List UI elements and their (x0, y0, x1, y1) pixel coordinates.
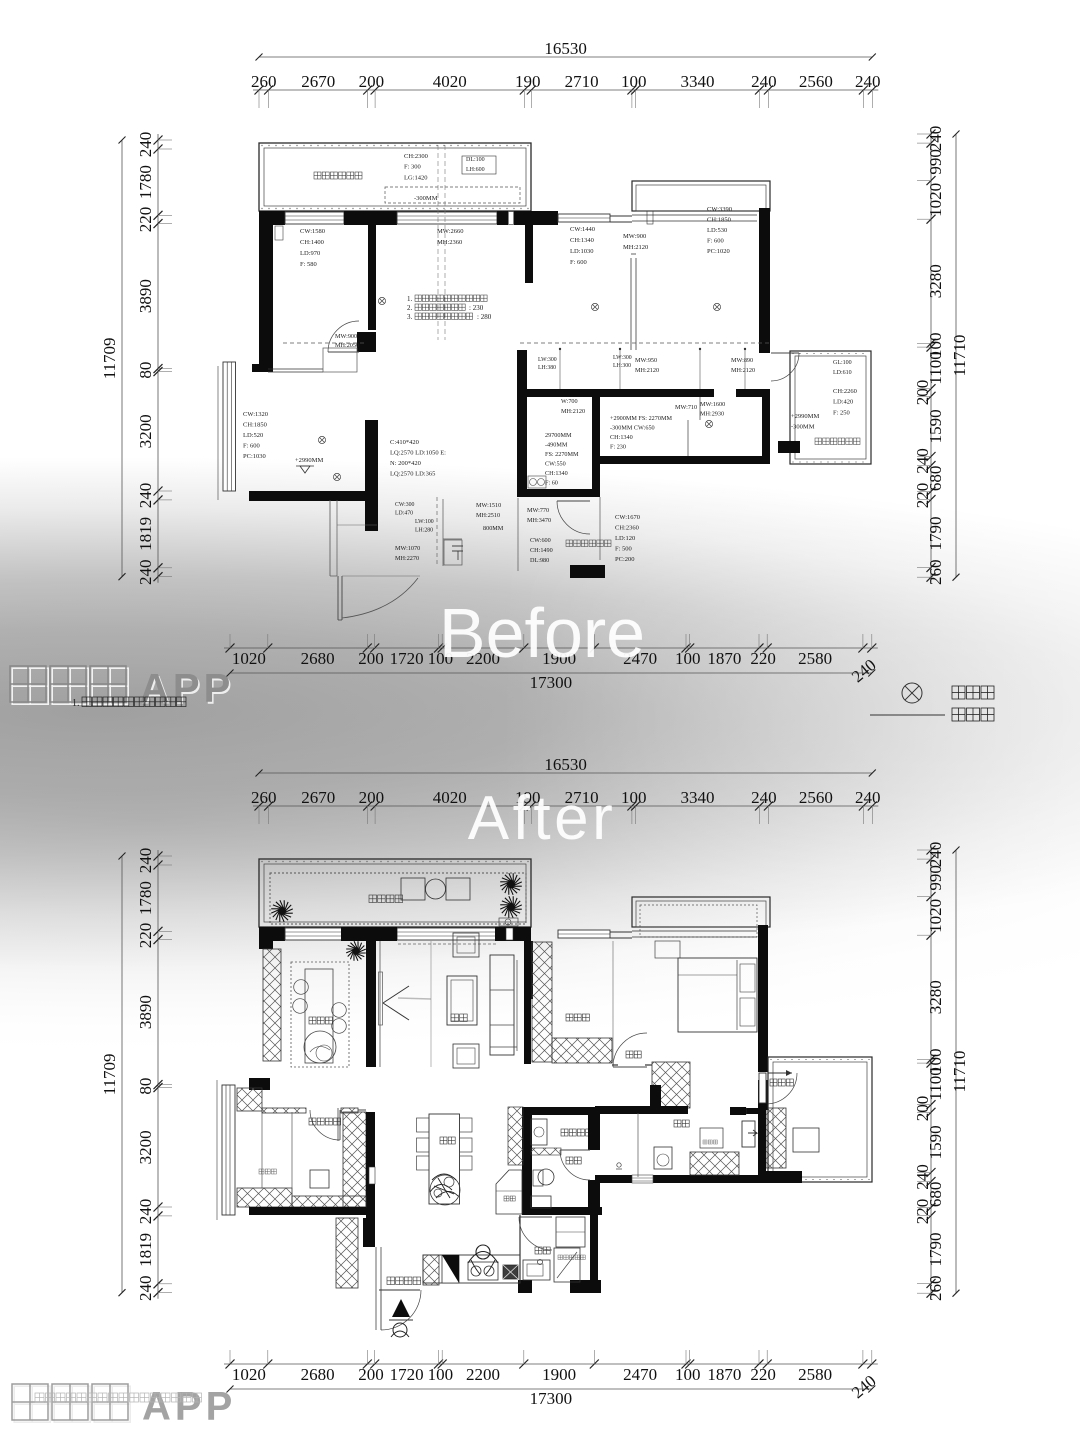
svg-text:LW:300: LW:300 (538, 357, 557, 363)
svg-text:MH:2360: MH:2360 (437, 239, 462, 246)
svg-text:200: 200 (358, 1365, 384, 1384)
svg-text:220: 220 (913, 483, 932, 509)
svg-text:990: 990 (926, 865, 945, 891)
svg-text:LD:1030: LD:1030 (570, 248, 593, 255)
svg-text:3340: 3340 (681, 788, 715, 807)
svg-text:Before: Before (439, 594, 645, 672)
svg-text:3340: 3340 (681, 72, 715, 91)
svg-text:MW:950: MW:950 (635, 357, 657, 364)
svg-text:2670: 2670 (301, 788, 335, 807)
svg-text:: 230: : 230 (469, 304, 484, 312)
svg-text:800MM: 800MM (483, 525, 504, 532)
svg-text:FS: 2270MM: FS: 2270MM (545, 451, 579, 458)
svg-text:MH:2120: MH:2120 (635, 367, 659, 374)
svg-text:F: 60: F: 60 (545, 480, 558, 487)
svg-text:CW:1320: CW:1320 (243, 411, 268, 418)
svg-text:+2990MM: +2990MM (791, 413, 819, 420)
svg-text:2200: 2200 (466, 1365, 500, 1384)
svg-text:240: 240 (848, 1371, 880, 1402)
svg-text:CW:300: CW:300 (395, 502, 415, 508)
svg-text:1900: 1900 (542, 1365, 576, 1384)
svg-text:200: 200 (358, 649, 384, 668)
svg-text:2470: 2470 (623, 1365, 657, 1384)
svg-text:1590: 1590 (926, 1125, 945, 1159)
svg-text:W:700: W:700 (561, 398, 578, 405)
svg-text:240: 240 (855, 72, 881, 91)
svg-text:F: 600: F: 600 (707, 238, 724, 245)
svg-text:11709: 11709 (100, 1053, 119, 1095)
svg-text:CH:1340: CH:1340 (570, 237, 594, 244)
svg-text:2680: 2680 (301, 649, 335, 668)
svg-text:11709: 11709 (100, 337, 119, 379)
svg-text:MH:2120: MH:2120 (561, 408, 585, 415)
svg-text:: 280: : 280 (477, 313, 492, 321)
svg-text:LW:300: LW:300 (613, 355, 632, 361)
svg-text:2580: 2580 (798, 1365, 832, 1384)
svg-text:3200: 3200 (136, 1130, 155, 1164)
svg-text:F: 600: F: 600 (570, 259, 587, 266)
svg-text:200: 200 (913, 380, 932, 406)
svg-text:CH:1490: CH:1490 (530, 547, 553, 554)
svg-text:240: 240 (926, 126, 945, 152)
svg-text:240: 240 (136, 483, 155, 509)
svg-text:100: 100 (621, 788, 647, 807)
svg-text:1590: 1590 (926, 409, 945, 443)
svg-text:PC:1030: PC:1030 (243, 453, 266, 460)
svg-text:990: 990 (926, 149, 945, 175)
svg-text:LH:380: LH:380 (538, 365, 556, 371)
svg-text:CH:2360: CH:2360 (615, 525, 639, 532)
svg-text:80: 80 (136, 362, 155, 379)
svg-text:+2990MM: +2990MM (295, 457, 323, 464)
svg-text:CW:1580: CW:1580 (300, 228, 325, 235)
svg-text:LD:120: LD:120 (615, 535, 635, 542)
svg-text:F: 300: F: 300 (404, 164, 421, 171)
svg-text:1100: 1100 (926, 1067, 945, 1100)
svg-text:LD:610: LD:610 (833, 370, 852, 376)
svg-text:220: 220 (136, 207, 155, 233)
svg-text:80: 80 (136, 1078, 155, 1095)
svg-text:CH:1850: CH:1850 (243, 422, 267, 429)
svg-text:LD:520: LD:520 (243, 432, 263, 439)
svg-text:11710: 11710 (950, 1051, 969, 1093)
svg-text:2580: 2580 (798, 649, 832, 668)
svg-text:220: 220 (750, 649, 776, 668)
svg-text:4020: 4020 (433, 72, 467, 91)
svg-text:MW:900: MW:900 (335, 333, 357, 340)
svg-text:CW:550: CW:550 (545, 461, 566, 468)
svg-text:100: 100 (675, 649, 701, 668)
svg-text:LH:600: LH:600 (466, 167, 485, 173)
svg-text:2680: 2680 (301, 1365, 335, 1384)
svg-text:240: 240 (136, 1276, 155, 1302)
svg-text:1020: 1020 (232, 649, 266, 668)
svg-text:PC:1020: PC:1020 (707, 248, 730, 255)
svg-text:CH:1340: CH:1340 (545, 470, 568, 477)
svg-text:17300: 17300 (530, 1389, 573, 1408)
svg-text:GL:100: GL:100 (833, 360, 852, 366)
svg-text:260: 260 (926, 1276, 945, 1302)
svg-text:1870: 1870 (707, 1365, 741, 1384)
svg-text:220: 220 (750, 1365, 776, 1384)
svg-text:2560: 2560 (799, 72, 833, 91)
svg-text:F: 250: F: 250 (833, 409, 850, 416)
svg-text:100: 100 (675, 1365, 701, 1384)
svg-text:1020: 1020 (926, 899, 945, 933)
svg-text:16530: 16530 (544, 39, 587, 58)
svg-text:CH:1400: CH:1400 (300, 239, 324, 246)
svg-text:MH:2270: MH:2270 (395, 555, 419, 562)
svg-text:MH:2050: MH:2050 (335, 342, 359, 349)
svg-text:3890: 3890 (136, 995, 155, 1029)
svg-text:11710: 11710 (950, 335, 969, 377)
svg-text:220: 220 (913, 1199, 932, 1225)
svg-text:MH:2120: MH:2120 (731, 367, 755, 374)
svg-text:-300MM: -300MM (791, 424, 815, 431)
svg-text:MH:2510: MH:2510 (476, 512, 500, 519)
svg-text:240: 240 (751, 788, 777, 807)
svg-text:CW:1670: CW:1670 (615, 514, 640, 521)
svg-text:LW:100: LW:100 (415, 519, 434, 525)
svg-text:1790: 1790 (926, 1233, 945, 1267)
svg-text:LD:420: LD:420 (833, 399, 853, 406)
svg-text:MW:890: MW:890 (731, 357, 753, 364)
svg-text:MH:2930: MH:2930 (700, 411, 724, 418)
svg-text:F: 600: F: 600 (243, 443, 260, 450)
svg-text:220: 220 (136, 923, 155, 949)
svg-text:CW:3390: CW:3390 (707, 206, 732, 213)
svg-text:LD:530: LD:530 (707, 227, 727, 234)
svg-text:200: 200 (359, 788, 385, 807)
svg-text:APP: APP (140, 667, 234, 711)
svg-text:F: 500: F: 500 (615, 546, 632, 553)
svg-text:240: 240 (136, 560, 155, 586)
svg-text:16530: 16530 (544, 755, 587, 774)
svg-text:LH:300: LH:300 (613, 363, 631, 369)
svg-text:190: 190 (515, 72, 541, 91)
svg-text:MW:2660: MW:2660 (437, 228, 463, 235)
svg-text:240: 240 (855, 788, 881, 807)
svg-text:MH:3470: MH:3470 (527, 517, 551, 524)
svg-text:C:410*420: C:410*420 (390, 439, 419, 446)
svg-text:17300: 17300 (530, 673, 573, 692)
svg-text:-300MM: -300MM (414, 195, 438, 202)
svg-text:240: 240 (136, 848, 155, 874)
svg-text:After: After (468, 784, 616, 853)
svg-text:260: 260 (251, 72, 277, 91)
svg-text:N: 200*420: N: 200*420 (390, 460, 421, 467)
svg-text:1020: 1020 (926, 183, 945, 217)
svg-text:-490MM: -490MM (545, 442, 568, 449)
svg-text:260: 260 (251, 788, 277, 807)
svg-text:MH:2120: MH:2120 (623, 244, 648, 251)
svg-text:APP: APP (142, 1385, 236, 1429)
svg-text:1020: 1020 (232, 1365, 266, 1384)
svg-text:3890: 3890 (136, 279, 155, 313)
svg-text:MW:710: MW:710 (675, 404, 697, 411)
svg-text:CH:1850: CH:1850 (707, 217, 731, 224)
svg-text:3200: 3200 (136, 414, 155, 448)
svg-text:1780: 1780 (136, 881, 155, 915)
svg-text:1100: 1100 (926, 351, 945, 384)
svg-text:LD:970: LD:970 (300, 250, 320, 257)
svg-text:3280: 3280 (926, 980, 945, 1014)
svg-text:-300MM CW:650: -300MM CW:650 (610, 425, 655, 432)
svg-text:240: 240 (136, 132, 155, 158)
svg-text:DL:100: DL:100 (466, 157, 485, 163)
svg-text:200: 200 (913, 1096, 932, 1122)
svg-text:240: 240 (751, 72, 777, 91)
svg-text:4020: 4020 (433, 788, 467, 807)
svg-text:3.: 3. (407, 313, 413, 321)
svg-text:240: 240 (136, 1199, 155, 1225)
svg-text:MW:900: MW:900 (623, 233, 646, 240)
svg-text:1720: 1720 (390, 1365, 424, 1384)
svg-text:1870: 1870 (707, 649, 741, 668)
svg-text:200: 200 (359, 72, 385, 91)
svg-text:2710: 2710 (565, 72, 599, 91)
svg-text:1.: 1. (72, 698, 80, 709)
svg-text:1819: 1819 (136, 1233, 155, 1267)
svg-text:CH:2260: CH:2260 (833, 388, 857, 395)
svg-text:100: 100 (621, 72, 647, 91)
svg-text:F: 580: F: 580 (300, 261, 317, 268)
svg-text:1819: 1819 (136, 517, 155, 551)
svg-text:240: 240 (926, 842, 945, 868)
svg-text:F: 230: F: 230 (610, 444, 626, 451)
svg-text:1.: 1. (407, 295, 413, 303)
svg-text:DL:980: DL:980 (530, 557, 549, 564)
svg-text:MW:770: MW:770 (527, 507, 549, 514)
svg-text:1790: 1790 (926, 517, 945, 551)
svg-text:CW:600: CW:600 (530, 537, 551, 544)
svg-text:100: 100 (428, 1365, 454, 1384)
svg-text:2560: 2560 (799, 788, 833, 807)
svg-text:1720: 1720 (390, 649, 424, 668)
svg-text:MW:1070: MW:1070 (395, 545, 420, 552)
svg-text:260: 260 (926, 560, 945, 586)
svg-text:1780: 1780 (136, 165, 155, 199)
svg-text:CW:1440: CW:1440 (570, 226, 595, 233)
svg-text:29700MM: 29700MM (545, 432, 572, 439)
svg-text:MW:1600: MW:1600 (700, 401, 725, 408)
svg-text:2.: 2. (407, 304, 413, 312)
svg-text:LD:470: LD:470 (395, 511, 413, 517)
svg-text:CH:2300: CH:2300 (404, 153, 428, 160)
svg-text:2670: 2670 (301, 72, 335, 91)
svg-text:LQ:2570 LD:1050 E:: LQ:2570 LD:1050 E: (390, 450, 446, 457)
svg-text:PC:200: PC:200 (615, 556, 635, 563)
svg-text:3280: 3280 (926, 264, 945, 298)
svg-text:LG:1420: LG:1420 (404, 174, 427, 181)
svg-text:MW:1510: MW:1510 (476, 502, 501, 509)
svg-text:LH:280: LH:280 (415, 528, 433, 534)
svg-text:CH:1340: CH:1340 (610, 434, 633, 441)
svg-text:+2900MM FS: 2270MM: +2900MM FS: 2270MM (610, 415, 672, 422)
svg-text:LQ:2570 LD:365: LQ:2570 LD:365 (390, 471, 435, 478)
